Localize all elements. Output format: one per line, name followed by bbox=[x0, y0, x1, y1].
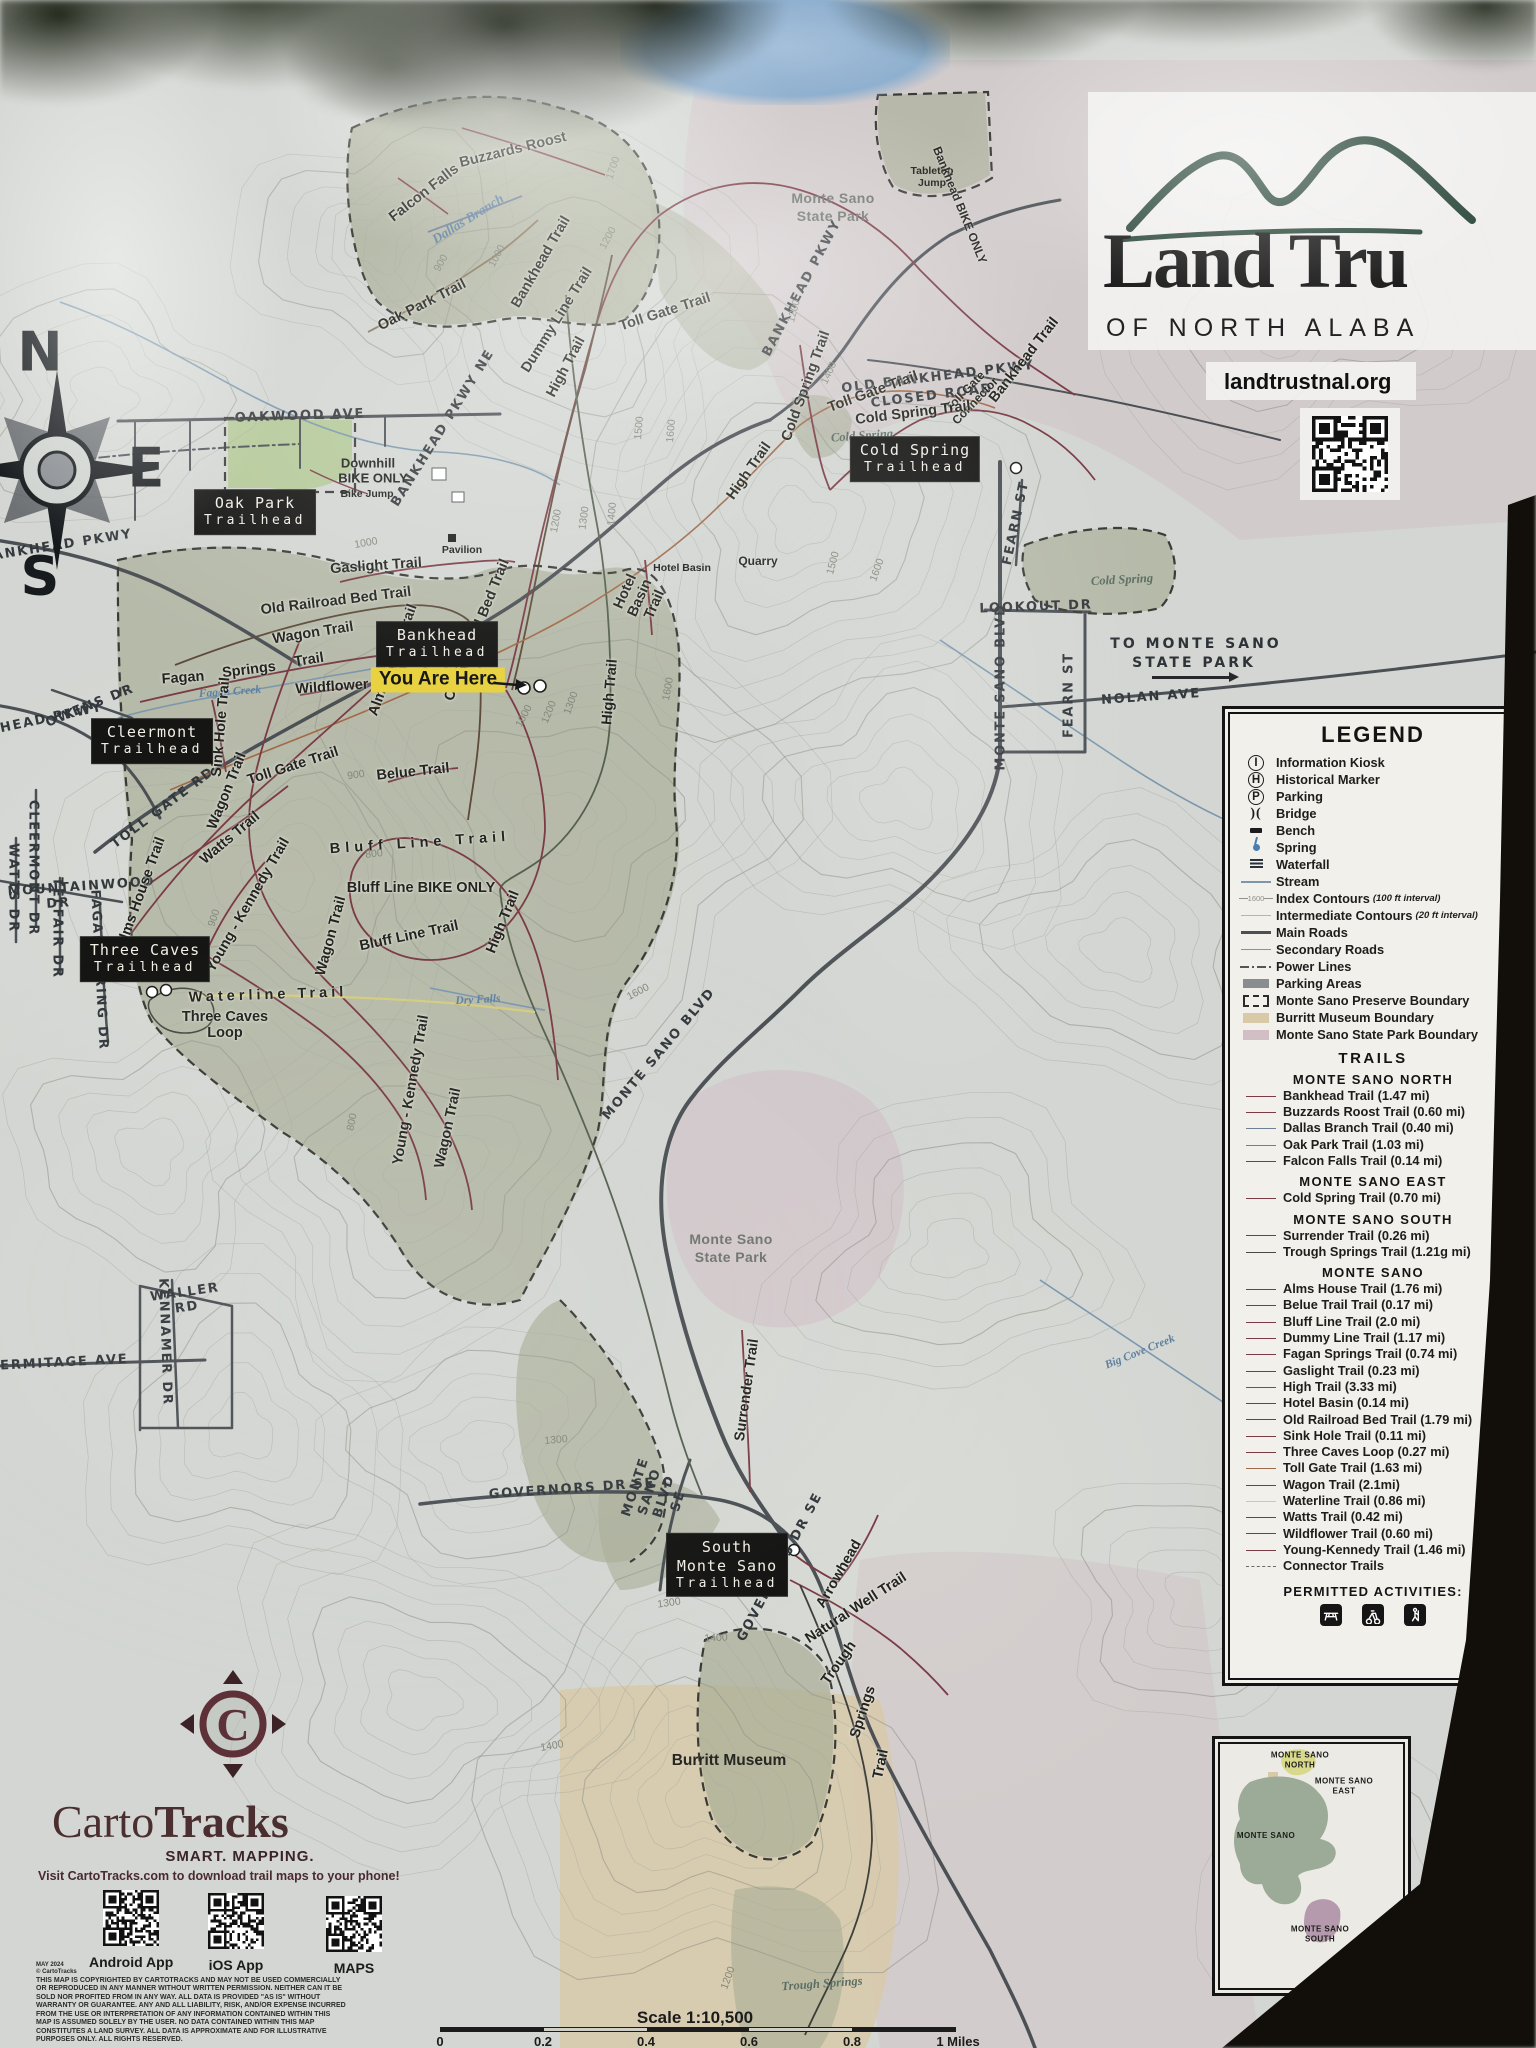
legend-item: Stream bbox=[1236, 873, 1510, 890]
secondary-roads-icon bbox=[1236, 949, 1276, 951]
trail-line-swatch bbox=[1246, 1468, 1276, 1469]
historical-marker-icon: H bbox=[1236, 772, 1276, 788]
legend-trail-item: Toll Gate Trail (1.63 mi) bbox=[1236, 1461, 1510, 1477]
legend-trail-item: Hotel Basin (0.14 mi) bbox=[1236, 1395, 1510, 1411]
trail-line-swatch bbox=[1246, 1289, 1276, 1290]
scale-tick: 0.2 bbox=[534, 2034, 552, 2048]
qr-code bbox=[103, 1890, 159, 1946]
legend-item: Burritt Museum Boundary bbox=[1236, 1009, 1510, 1026]
parking-icon bbox=[147, 987, 158, 998]
cartotracks-wordmark: CartoTracks bbox=[52, 1795, 382, 1848]
scale-tick: 0.4 bbox=[637, 2034, 655, 2048]
legend-trail-item: Bluff Line Trail (2.0 mi) bbox=[1236, 1314, 1510, 1330]
info-icon bbox=[534, 680, 546, 692]
bridge-icon: )( bbox=[1236, 806, 1276, 822]
legend-item: Monte Sano State Park Boundary bbox=[1236, 1026, 1510, 1043]
information-kiosk-icon: I bbox=[1236, 755, 1276, 771]
trail-line-swatch bbox=[1246, 1235, 1276, 1236]
legend-item: Secondary Roads bbox=[1236, 941, 1510, 958]
compass-east-label: E bbox=[128, 437, 165, 500]
inset-map-shapes bbox=[1220, 1744, 1403, 1988]
scale-tick: 1 Miles bbox=[936, 2034, 979, 2048]
legend-trail-item: Waterline Trail (0.86 mi) bbox=[1236, 1493, 1510, 1509]
pavilion-icon bbox=[448, 534, 456, 542]
trail-line-swatch bbox=[1246, 1387, 1276, 1388]
trailhead-box-oak-park: Oak ParkTrailhead bbox=[195, 490, 315, 534]
inset-label: Monte SanoSouth bbox=[1291, 1924, 1349, 1943]
legend-trail-sections: MONTE SANO NORTHBankhead Trail (1.47 mi)… bbox=[1236, 1072, 1510, 1575]
intermediate-contours-icon bbox=[1236, 915, 1276, 916]
trail-line-swatch bbox=[1246, 1252, 1276, 1253]
parking-areas-icon bbox=[1236, 979, 1276, 988]
inset-label: Monte Sano bbox=[1237, 1831, 1295, 1841]
legend-trail-item: Oak Park Trail (1.03 mi) bbox=[1236, 1137, 1510, 1153]
legend-trail-item: Watts Trail (0.42 mi) bbox=[1236, 1510, 1510, 1526]
trail-line-swatch bbox=[1246, 1533, 1276, 1534]
monte-sano-preserve-boundary-icon bbox=[1236, 995, 1276, 1007]
trailhead-box-three-caves: Three CavesTrailhead bbox=[81, 937, 209, 981]
trailhead-box-cold-spring: Cold SpringTrailhead bbox=[851, 437, 979, 481]
trail-line-swatch bbox=[1246, 1112, 1276, 1113]
trail-line-swatch bbox=[1246, 1419, 1276, 1420]
legend-symbols: IInformation KioskHHistorical MarkerPPar… bbox=[1236, 754, 1510, 1043]
scale-tick: 0.6 bbox=[740, 2034, 758, 2048]
legend-trail-item: Bankhead Trail (1.47 mi) bbox=[1236, 1088, 1510, 1104]
compass-south-label: S bbox=[21, 545, 60, 608]
spring-icon bbox=[1236, 844, 1276, 851]
legend-trail-item: Alms House Trail (1.76 mi) bbox=[1236, 1281, 1510, 1297]
legend-item: Monte Sano Preserve Boundary bbox=[1236, 992, 1510, 1009]
legend-trail-item: Wildflower Trail (0.60 mi) bbox=[1236, 1526, 1510, 1542]
info-icon bbox=[161, 985, 172, 996]
legend-trail-item: Belue Trail Trail (0.17 mi) bbox=[1236, 1298, 1510, 1314]
legend-trail-item: Fagan Springs Trail (0.74 mi) bbox=[1236, 1347, 1510, 1363]
stream-icon bbox=[1236, 881, 1276, 883]
legend-trail-item: Buzzards Roost Trail (0.60 mi) bbox=[1236, 1104, 1510, 1120]
inset-label: Monte SanoNorth bbox=[1271, 1750, 1329, 1769]
legend-section-title: MONTE SANO NORTH bbox=[1236, 1072, 1510, 1087]
legend-item: Power Lines bbox=[1236, 958, 1510, 975]
trail-surrender-path bbox=[742, 1330, 750, 1492]
legend-item: Waterfall bbox=[1236, 856, 1510, 873]
legend-panel: LEGEND IInformation KioskHHistorical Mar… bbox=[1228, 712, 1518, 1680]
legend-item: Bench bbox=[1236, 822, 1510, 839]
disclaimer-text: THIS MAP IS COPYRIGHTED BY CARTOTRACKS A… bbox=[36, 1977, 346, 2044]
legend-item: Spring bbox=[1236, 839, 1510, 856]
scale-bar bbox=[440, 2027, 956, 2032]
legend-trail-item: Falcon Falls Trail (0.14 mi) bbox=[1236, 1153, 1510, 1169]
legend-trail-item: Old Railroad Bed Trail (1.79 mi) bbox=[1236, 1412, 1510, 1428]
legend-trail-item: Young-Kennedy Trail (1.46 mi) bbox=[1236, 1542, 1510, 1558]
trail-line-swatch bbox=[1246, 1198, 1276, 1199]
copyright-fine-print: MAY 2024 © CartoTracks THIS MAP IS COPYR… bbox=[36, 1962, 346, 2045]
legend-item: HHistorical Marker bbox=[1236, 771, 1510, 788]
header-qr-code bbox=[1312, 416, 1388, 497]
bike-icon bbox=[1362, 1604, 1384, 1626]
trail-line-swatch bbox=[1246, 1517, 1276, 1518]
permitted-activities-title: PERMITTED ACTIVITIES: bbox=[1236, 1584, 1510, 1599]
scale-title: Scale 1:10,500 bbox=[560, 2008, 830, 2028]
cartotracks-tagline: SMART. MAPPING. bbox=[120, 1848, 360, 1865]
cartotracks-logo: C bbox=[178, 1668, 288, 1780]
org-subtitle: OF NORTH ALABA bbox=[1106, 314, 1420, 343]
legend-trail-item: Connector Trails bbox=[1236, 1558, 1510, 1574]
state-park-area-south bbox=[852, 1552, 1260, 2048]
org-name: Land Tru bbox=[1103, 222, 1407, 300]
inset-label: Monte SanoEast bbox=[1315, 1776, 1373, 1795]
legend-section-title: MONTE SANO bbox=[1236, 1265, 1510, 1280]
you-are-here-label: You Are Here bbox=[371, 668, 505, 693]
legend-item: 1600Index Contours(100 ft interval) bbox=[1236, 890, 1510, 907]
bench-icon bbox=[1236, 828, 1276, 833]
trail-line-swatch bbox=[1246, 1550, 1276, 1551]
waterfall-icon bbox=[1236, 859, 1276, 870]
qr-code bbox=[1312, 416, 1388, 492]
preserve-area-bike bbox=[878, 92, 990, 194]
trail-line-swatch bbox=[1246, 1501, 1276, 1502]
trail-line-swatch bbox=[1246, 1338, 1276, 1339]
legend-item: PParking bbox=[1236, 788, 1510, 805]
legend-trail-item: Dallas Branch Trail (0.40 mi) bbox=[1236, 1121, 1510, 1137]
index-contours-icon: 1600 bbox=[1236, 894, 1276, 903]
monte-sano-state-park-boundary-icon bbox=[1236, 1030, 1276, 1040]
legend-item: )(Bridge bbox=[1236, 805, 1510, 822]
trail-line-swatch bbox=[1246, 1371, 1276, 1372]
trail-line-swatch bbox=[1246, 1096, 1276, 1097]
legend-trail-item: Gaslight Trail (0.23 mi) bbox=[1236, 1363, 1510, 1379]
qr-code bbox=[326, 1896, 382, 1952]
main-roads-icon bbox=[1236, 931, 1276, 934]
picnic-icon bbox=[1320, 1604, 1342, 1626]
trails-title: TRAILS bbox=[1236, 1050, 1510, 1067]
legend-trail-item: Trough Springs Trail (1.21g mi) bbox=[1236, 1244, 1510, 1260]
you-are-here-arrow-icon bbox=[494, 676, 528, 692]
permitted-activities-icons bbox=[1236, 1604, 1510, 1626]
trail-line-swatch bbox=[1246, 1354, 1276, 1355]
copyright-line: © CartoTracks bbox=[36, 1969, 346, 1976]
trailhead-box-bankhead: BankheadTrailhead bbox=[377, 622, 497, 666]
compass-north-label: N bbox=[17, 321, 62, 384]
power-lines-icon bbox=[1236, 966, 1276, 968]
trail-map-sign-photo: Oakwood AveBankhead PkwyBankhead Pkwy NE… bbox=[0, 0, 1536, 2048]
info-icon bbox=[1011, 463, 1022, 474]
trail-line-swatch bbox=[1246, 1145, 1276, 1146]
legend-item: Parking Areas bbox=[1236, 975, 1510, 992]
trail-line-swatch bbox=[1246, 1485, 1276, 1486]
cartotracks-cta: Visit CartoTracks.com to download trail … bbox=[38, 1869, 408, 1883]
legend-trail-item: Wagon Trail (2.1mi) bbox=[1236, 1477, 1510, 1493]
legend-trail-item: Three Caves Loop (0.27 mi) bbox=[1236, 1444, 1510, 1460]
org-website: landtrustnal.org bbox=[1224, 369, 1391, 395]
legend-trail-item: Sink Hole Trail (0.11 mi) bbox=[1236, 1428, 1510, 1444]
legend-section-title: MONTE SANO EAST bbox=[1236, 1174, 1510, 1189]
trail-line-swatch bbox=[1246, 1128, 1276, 1129]
map-date: MAY 2024 bbox=[36, 1962, 346, 1969]
legend-section-title: MONTE SANO SOUTH bbox=[1236, 1212, 1510, 1227]
legend-item: Intermediate Contours(20 ft interval) bbox=[1236, 907, 1510, 924]
preserve-area-cold-spring bbox=[1022, 528, 1175, 614]
legend-trail-item: Surrender Trail (0.26 mi) bbox=[1236, 1228, 1510, 1244]
trailhead-box-cleermont: CleermontTrailhead bbox=[92, 719, 212, 763]
legend-item: Main Roads bbox=[1236, 924, 1510, 941]
qr-code bbox=[208, 1893, 264, 1949]
app-qr-android-app: Android App bbox=[89, 1890, 173, 1970]
trail-line-swatch bbox=[1246, 1566, 1276, 1567]
scale-tick: 0.8 bbox=[843, 2034, 861, 2048]
trail-line-swatch bbox=[1246, 1305, 1276, 1306]
trail-line-swatch bbox=[1246, 1161, 1276, 1162]
trail-line-swatch bbox=[1246, 1403, 1276, 1404]
scale-tick: 0 bbox=[436, 2034, 443, 2048]
legend-title: LEGEND bbox=[1236, 722, 1510, 748]
app-qr-ios-app: iOS App bbox=[208, 1893, 264, 1973]
burritt-museum-boundary-icon bbox=[1236, 1013, 1276, 1023]
trail-line-swatch bbox=[1246, 1322, 1276, 1323]
state-park-area-mid bbox=[667, 1070, 904, 1328]
trail-line-swatch bbox=[1246, 1452, 1276, 1453]
trail-line-swatch bbox=[1246, 1436, 1276, 1437]
legend-trail-item: Cold Spring Trail (0.70 mi) bbox=[1236, 1190, 1510, 1206]
hike-icon bbox=[1404, 1604, 1426, 1626]
cartotracks-logo-letter: C bbox=[216, 1699, 249, 1750]
inset-overview-map: Monte SanoNorthMonte SanoEastMonte SanoM… bbox=[1218, 1742, 1405, 1990]
legend-trail-item: High Trail (3.33 mi) bbox=[1236, 1379, 1510, 1395]
legend-item: IInformation Kiosk bbox=[1236, 754, 1510, 771]
parking-icon bbox=[789, 1545, 800, 1556]
legend-trail-item: Dummy Line Trail (1.17 mi) bbox=[1236, 1330, 1510, 1346]
parking-icon: P bbox=[1236, 789, 1276, 805]
trailhead-box-south-monte-sano: SouthMonte SanoTrailhead bbox=[667, 1534, 787, 1596]
